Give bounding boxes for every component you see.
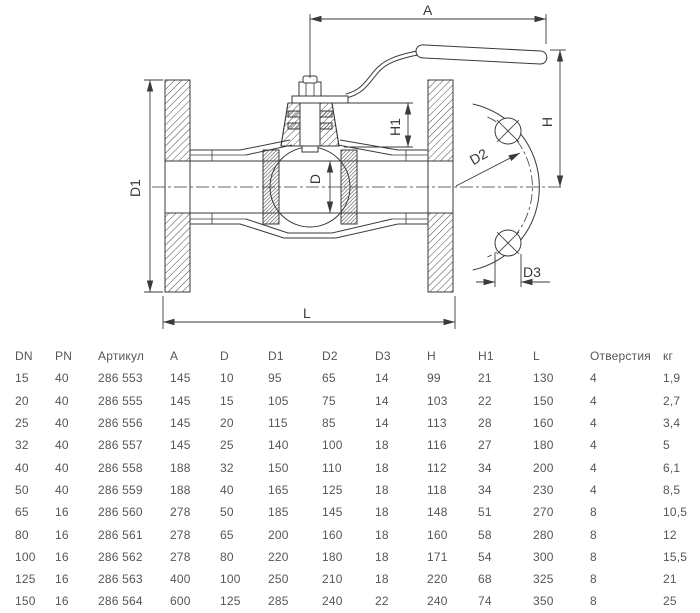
dim-label-l: L: [303, 305, 311, 321]
table-cell: 4: [590, 461, 663, 475]
table-cell: 240: [322, 594, 375, 608]
table-cell: 400: [170, 572, 220, 586]
table-cell: 188: [170, 483, 220, 497]
table-cell: 286 559: [98, 483, 170, 497]
table-cell: 200: [533, 461, 590, 475]
table-cell: 285: [268, 594, 322, 608]
table-cell: 40: [55, 438, 98, 452]
table-cell: 40: [55, 416, 98, 430]
table-cell: 160: [322, 528, 375, 542]
table-cell: 15: [220, 394, 268, 408]
table-cell: 18: [375, 550, 427, 564]
table-cell: 50: [220, 505, 268, 519]
table-cell: 286 561: [98, 528, 170, 542]
table-cell: 18: [375, 505, 427, 519]
table-cell: 21: [663, 572, 700, 586]
table-cell: 286 558: [98, 461, 170, 475]
table-cell: 75: [322, 394, 375, 408]
table-cell: 125: [322, 483, 375, 497]
table-cell: 286 555: [98, 394, 170, 408]
table-cell: 105: [268, 394, 322, 408]
dim-label-d2: D2: [467, 145, 491, 168]
dim-label-h: H: [539, 117, 555, 127]
table-cell: 10,5: [663, 505, 700, 519]
table-cell: 85: [322, 416, 375, 430]
table-cell: 110: [322, 461, 375, 475]
table-cell: 171: [427, 550, 478, 564]
table-cell: 2,7: [663, 394, 700, 408]
table-cell: 16: [55, 505, 98, 519]
stem-assembly: [281, 96, 339, 152]
right-flange: [428, 80, 453, 292]
table-cell: 116: [427, 438, 478, 452]
table-header-cell: H: [427, 349, 478, 363]
table-cell: 80: [15, 528, 55, 542]
table-cell: 250: [268, 572, 322, 586]
table-header-cell: D3: [375, 349, 427, 363]
handle-grip: [416, 45, 548, 65]
table-cell: 18: [375, 528, 427, 542]
table-cell: 65: [322, 371, 375, 385]
table-cell: 150: [15, 594, 55, 608]
table-cell: 220: [427, 572, 478, 586]
table-cell: 300: [533, 550, 590, 564]
table-cell: 180: [322, 550, 375, 564]
table-cell: 4: [590, 371, 663, 385]
table-header-cell: DN: [15, 349, 55, 363]
table-cell: 34: [478, 461, 533, 475]
left-flange: [165, 80, 190, 292]
table-cell: 210: [322, 572, 375, 586]
table-cell: 34: [478, 483, 533, 497]
table-cell: 14: [375, 371, 427, 385]
dim-label-h1: H1: [387, 118, 403, 136]
table-cell: 16: [55, 528, 98, 542]
table-cell: 8: [590, 594, 663, 608]
table-cell: 188: [170, 461, 220, 475]
table-cell: 14: [375, 416, 427, 430]
table-cell: 286 553: [98, 371, 170, 385]
table-cell: 18: [375, 461, 427, 475]
table-cell: 8: [590, 550, 663, 564]
table-cell: 58: [478, 528, 533, 542]
table-cell: 8: [590, 505, 663, 519]
table-cell: 68: [478, 572, 533, 586]
table-cell: 150: [268, 461, 322, 475]
table-cell: 21: [478, 371, 533, 385]
table-cell: 40: [55, 483, 98, 497]
table-cell: 51: [478, 505, 533, 519]
table-cell: 125: [15, 572, 55, 586]
dimensions-table: DNPNАртикулADD1D2D3HH1LОтверстиякг154028…: [0, 345, 700, 613]
table-cell: 16: [55, 572, 98, 586]
table-cell: 280: [533, 528, 590, 542]
table-cell: 20: [15, 394, 55, 408]
table-cell: 286 564: [98, 594, 170, 608]
table-cell: 74: [478, 594, 533, 608]
table-header-cell: H1: [478, 349, 533, 363]
table-cell: 270: [533, 505, 590, 519]
table-cell: 15,5: [663, 550, 700, 564]
table-cell: 25: [220, 438, 268, 452]
stem-nut: [292, 76, 348, 103]
table-cell: 145: [170, 371, 220, 385]
table-cell: 145: [170, 438, 220, 452]
table-cell: 278: [170, 550, 220, 564]
table-cell: 40: [15, 461, 55, 475]
table-cell: 28: [478, 416, 533, 430]
table-header-cell: D2: [322, 349, 375, 363]
table-header-cell: кг: [663, 349, 700, 363]
table-cell: 25: [15, 416, 55, 430]
table-cell: 103: [427, 394, 478, 408]
table-cell: 113: [427, 416, 478, 430]
table-cell: 286 556: [98, 416, 170, 430]
table-cell: 8: [590, 572, 663, 586]
table-cell: 32: [220, 461, 268, 475]
table-cell: 20: [220, 416, 268, 430]
table-cell: 286 562: [98, 550, 170, 564]
table-cell: 165: [268, 483, 322, 497]
table-cell: 40: [55, 371, 98, 385]
table-header-cell: D1: [268, 349, 322, 363]
table-cell: 145: [170, 394, 220, 408]
table-cell: 40: [55, 394, 98, 408]
table-cell: 18: [375, 438, 427, 452]
table-cell: 185: [268, 505, 322, 519]
table-header-cell: L: [533, 349, 590, 363]
table-cell: 22: [375, 594, 427, 608]
table-cell: 4: [590, 416, 663, 430]
table-cell: 16: [55, 550, 98, 564]
table-cell: 286 560: [98, 505, 170, 519]
table-cell: 600: [170, 594, 220, 608]
table-cell: 220: [268, 550, 322, 564]
table-cell: 65: [220, 528, 268, 542]
table-cell: 130: [533, 371, 590, 385]
table-cell: 100: [15, 550, 55, 564]
table-cell: 278: [170, 528, 220, 542]
table-cell: 278: [170, 505, 220, 519]
dim-label-d: D: [307, 174, 323, 184]
table-cell: 5: [663, 438, 700, 452]
table-cell: 80: [220, 550, 268, 564]
table-cell: 148: [427, 505, 478, 519]
valve-datasheet: A H H1 D D1 D2 D3 L DNPNАртикулADD1D2D3H…: [0, 0, 700, 613]
table-cell: 18: [375, 483, 427, 497]
table-cell: 125: [220, 594, 268, 608]
table-cell: 180: [533, 438, 590, 452]
table-cell: 18: [375, 572, 427, 586]
table-cell: 4: [590, 438, 663, 452]
table-cell: 14: [375, 394, 427, 408]
table-cell: 22: [478, 394, 533, 408]
dim-label-a: A: [423, 2, 433, 18]
table-cell: 65: [15, 505, 55, 519]
table-cell: 50: [15, 483, 55, 497]
table-cell: 40: [220, 483, 268, 497]
table-cell: 12: [663, 528, 700, 542]
table-cell: 200: [268, 528, 322, 542]
table-cell: 140: [268, 438, 322, 452]
table-cell: 27: [478, 438, 533, 452]
table-cell: 350: [533, 594, 590, 608]
table-cell: 286 557: [98, 438, 170, 452]
table-header-cell: PN: [55, 349, 98, 363]
valve-drawing: A H H1 D D1 D2 D3 L: [0, 0, 700, 344]
table-cell: 32: [15, 438, 55, 452]
table-cell: 6,1: [663, 461, 700, 475]
table-cell: 118: [427, 483, 478, 497]
valve-body-section: [152, 45, 563, 292]
table-cell: 40: [55, 461, 98, 475]
table-header-cell: A: [170, 349, 220, 363]
table-cell: 8,5: [663, 483, 700, 497]
table-cell: 99: [427, 371, 478, 385]
table-cell: 25: [663, 594, 700, 608]
dim-label-d3: D3: [523, 264, 541, 280]
table-header-cell: D: [220, 349, 268, 363]
table-cell: 16: [55, 594, 98, 608]
table-cell: 230: [533, 483, 590, 497]
table-cell: 100: [220, 572, 268, 586]
table-cell: 160: [533, 416, 590, 430]
table-cell: 10: [220, 371, 268, 385]
table-cell: 95: [268, 371, 322, 385]
table-cell: 325: [533, 572, 590, 586]
table-cell: 100: [322, 438, 375, 452]
table-cell: 8: [590, 528, 663, 542]
table-cell: 145: [322, 505, 375, 519]
table-cell: 4: [590, 394, 663, 408]
table-header-cell: Отверстия: [590, 349, 663, 363]
table-cell: 145: [170, 416, 220, 430]
table-cell: 150: [533, 394, 590, 408]
table-cell: 54: [478, 550, 533, 564]
table-cell: 286 563: [98, 572, 170, 586]
table-cell: 240: [427, 594, 478, 608]
table-cell: 1,9: [663, 371, 700, 385]
table-cell: 112: [427, 461, 478, 475]
table-cell: 4: [590, 483, 663, 497]
table-header-cell: Артикул: [98, 349, 170, 363]
table-cell: 160: [427, 528, 478, 542]
table-cell: 3,4: [663, 416, 700, 430]
table-cell: 15: [15, 371, 55, 385]
table-cell: 115: [268, 416, 322, 430]
dim-label-d1: D1: [127, 179, 143, 197]
